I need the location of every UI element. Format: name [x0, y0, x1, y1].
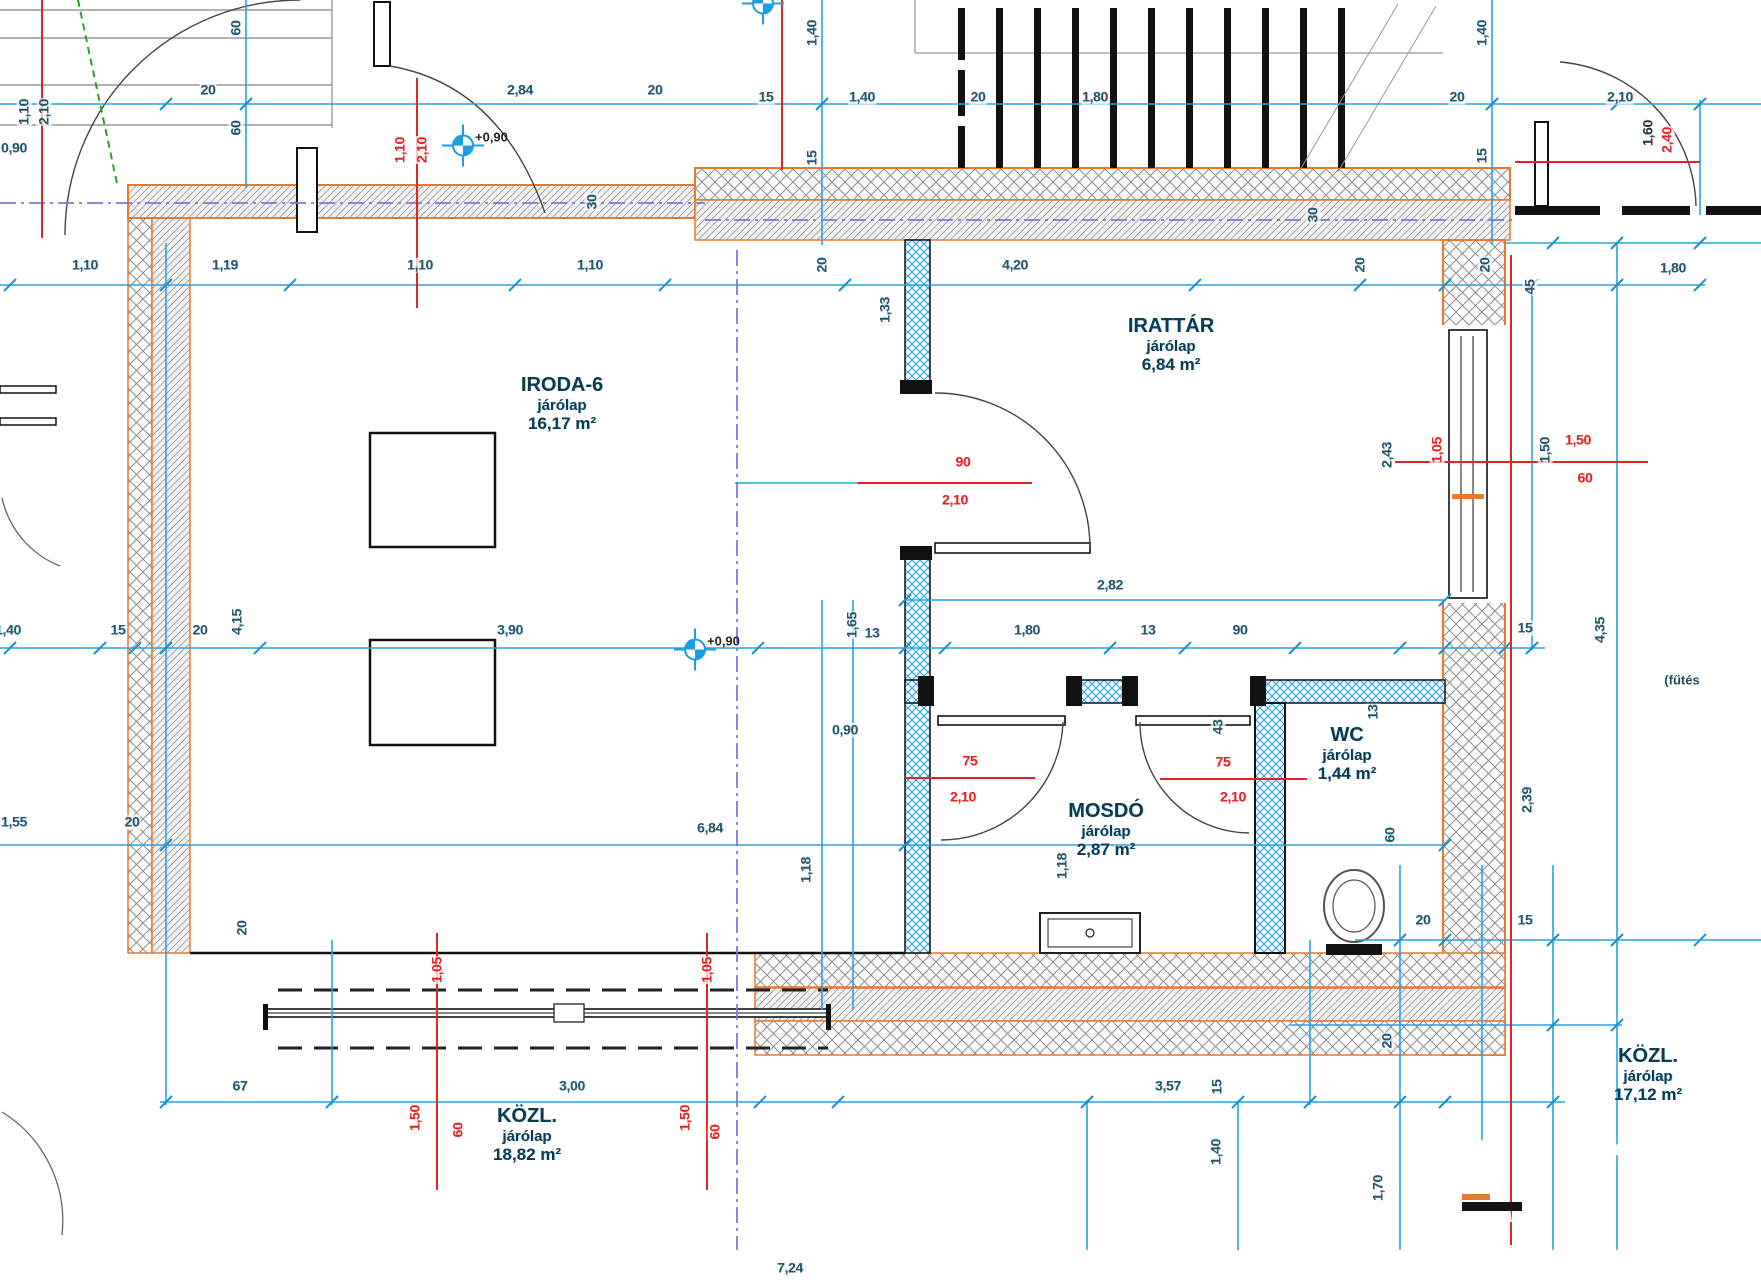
dimension-label: 2,43 — [1380, 441, 1395, 469]
room-rname: KÖZL. — [1614, 1045, 1682, 1068]
dimension-label: 2,10 — [949, 790, 977, 805]
dimension-label: 1,18 — [1055, 852, 1070, 880]
dimension-label: 60 — [708, 1124, 723, 1141]
staircase-top — [915, 0, 1443, 172]
dimension-label: 20 — [970, 90, 987, 105]
dimension-label: 2,39 — [1520, 786, 1535, 814]
dimension-label: 75 — [1215, 755, 1232, 770]
dimension-label: 4,35 — [1593, 616, 1608, 644]
dimension-label: 30 — [585, 194, 600, 211]
columns — [370, 433, 495, 745]
room-label: IRATTÁRjárólap6,84 m² — [1128, 315, 1214, 375]
dimension-label: 6,84 — [696, 821, 724, 836]
dimension-label: 60 — [229, 120, 244, 137]
dimension-label: 2,10 — [415, 136, 430, 164]
dimension-label: 13 — [1140, 623, 1157, 638]
dimension-label: 2,10 — [1219, 790, 1247, 805]
dimension-label: 67 — [232, 1079, 249, 1094]
dimension-label: 20 — [1353, 257, 1368, 274]
dimension-label: 1,65 — [845, 611, 860, 639]
dimension-label: 20 — [235, 920, 250, 937]
dimension-label: 90 — [1232, 623, 1249, 638]
room-rarea: 16,17 m² — [521, 414, 603, 434]
room-rfinish: járólap — [521, 397, 603, 414]
dimension-label: 0,90 — [0, 141, 28, 156]
dimension-label: 15 — [1210, 1079, 1225, 1096]
room-rarea: 18,82 m² — [493, 1145, 561, 1165]
dimension-label: 1,40 — [805, 19, 820, 47]
corridor-wall-bottom — [263, 990, 831, 1048]
dimension-label: 15 — [805, 150, 820, 167]
dimension-label: 30 — [1306, 207, 1321, 224]
room-rfinish: járólap — [493, 1128, 561, 1145]
room-label: MOSDÓjárólap2,87 m² — [1068, 800, 1144, 860]
dimension-label: 13 — [1366, 704, 1381, 721]
dimension-label: 15 — [110, 623, 127, 638]
dimension-label: 1,10 — [576, 258, 604, 273]
dimension-label: 1,50 — [678, 1104, 693, 1132]
dimension-label: 1,40 — [0, 623, 22, 638]
dimension-label: 1,80 — [1659, 261, 1687, 276]
dimension-label: 4,15 — [230, 608, 245, 636]
dimension-label: 60 — [229, 20, 244, 37]
dimension-label: 75 — [962, 754, 979, 769]
dimension-label: 2,10 — [941, 493, 969, 508]
dimension-label: 0,90 — [831, 723, 859, 738]
annotation-text: (fűtés — [1664, 673, 1699, 688]
dimension-label: 20 — [192, 623, 209, 638]
dimension-label: 1,80 — [1081, 90, 1109, 105]
room-rname: MOSDÓ — [1068, 800, 1144, 823]
dimension-label: 1,05 — [700, 956, 715, 984]
room-rarea: 2,87 m² — [1068, 840, 1144, 860]
dimension-label: 1,05 — [1430, 436, 1445, 464]
room-rfinish: járólap — [1614, 1068, 1682, 1085]
room-label: KÖZL.járólap17,12 m² — [1614, 1045, 1682, 1105]
dimension-label: 20 — [1478, 257, 1493, 274]
dimension-label: 2,40 — [1660, 126, 1675, 154]
room-rarea: 6,84 m² — [1128, 355, 1214, 375]
dimension-label: 1,18 — [799, 856, 814, 884]
dimension-label: 20 — [124, 815, 141, 830]
room-label: WCjárólap1,44 m² — [1318, 724, 1377, 784]
dimension-label: 1,50 — [408, 1104, 423, 1132]
room-rfinish: járólap — [1128, 338, 1214, 355]
floor-plan-drawing — [0, 0, 1761, 1280]
dimension-label: 90 — [955, 455, 972, 470]
dimension-label: 2,10 — [37, 98, 52, 126]
dimension-label: 1,60 — [1641, 119, 1656, 147]
centerlines — [0, 203, 1515, 1250]
dimension-label: 1,55 — [0, 815, 28, 830]
window-right — [1441, 325, 1507, 603]
dimension-label: 60 — [1383, 827, 1398, 844]
dimension-label: 1,50 — [1538, 436, 1553, 464]
dimension-label: 1,19 — [211, 258, 239, 273]
floor-plan-canvas: 202,8420151,40201,80202,100,901,101,191,… — [0, 0, 1761, 1280]
room-label: KÖZL.járólap18,82 m² — [493, 1105, 561, 1165]
room-label: IRODA-6járólap16,17 m² — [521, 374, 603, 434]
room-rname: IRATTÁR — [1128, 315, 1214, 338]
dimension-label: 43 — [1211, 719, 1226, 736]
level-value: +0,90 — [475, 130, 508, 145]
dimension-label: 20 — [815, 257, 830, 274]
level-target-icon — [741, 0, 785, 26]
dimension-label: 13 — [864, 626, 881, 641]
room-rarea: 17,12 m² — [1614, 1085, 1682, 1105]
dimension-label: 3,57 — [1154, 1079, 1182, 1094]
dimension-label: 2,10 — [1606, 90, 1634, 105]
dimension-label: 7,24 — [776, 1261, 804, 1276]
dimension-label: 1,40 — [848, 90, 876, 105]
dimension-label: 1,50 — [1564, 433, 1592, 448]
dimension-label: 1,40 — [1475, 19, 1490, 47]
fixtures-layer — [1040, 870, 1384, 955]
dimension-label: 2,82 — [1096, 578, 1124, 593]
dimension-label: 20 — [647, 83, 664, 98]
dimension-label: 15 — [1517, 913, 1534, 928]
dimension-label: 1,40 — [1209, 1138, 1224, 1166]
dimension-label: 20 — [200, 83, 217, 98]
room-rfinish: járólap — [1068, 823, 1144, 840]
room-rname: WC — [1318, 724, 1377, 747]
level-marker: +0,90 — [673, 628, 717, 677]
level-value: +0,90 — [707, 634, 740, 649]
dimension-label: 1,10 — [393, 136, 408, 164]
dimension-label: 45 — [1523, 279, 1538, 296]
dimension-label: 1,10 — [17, 98, 32, 126]
room-rname: IRODA-6 — [521, 374, 603, 397]
dimension-label: 15 — [1517, 621, 1534, 636]
dimension-label: 4,20 — [1001, 258, 1029, 273]
dimension-label: 60 — [1577, 471, 1594, 486]
dimension-label: 1,33 — [878, 296, 893, 324]
dimension-label: 20 — [1449, 90, 1466, 105]
dimension-label: 15 — [1475, 148, 1490, 165]
dimension-label: 2,84 — [506, 83, 534, 98]
room-rfinish: járólap — [1318, 747, 1377, 764]
dimension-label: 15 — [758, 90, 775, 105]
dimension-label: 1,80 — [1013, 623, 1041, 638]
dimension-label: 1,05 — [430, 956, 445, 984]
dimension-label: 20 — [1380, 1033, 1395, 1050]
dimension-label: 60 — [451, 1122, 466, 1139]
room-rarea: 1,44 m² — [1318, 764, 1377, 784]
dimension-label: 1,10 — [71, 258, 99, 273]
watermark — [1462, 1128, 1652, 1222]
level-marker: +0,90 — [441, 124, 485, 173]
dimension-label: 3,90 — [496, 623, 524, 638]
dimension-label: 20 — [1415, 913, 1432, 928]
dimension-label: 1,70 — [1371, 1174, 1386, 1202]
left-edge-openings — [0, 386, 63, 1235]
dimension-label: 1,10 — [406, 258, 434, 273]
dimension-label: 3,00 — [558, 1079, 586, 1094]
room-rname: KÖZL. — [493, 1105, 561, 1128]
level-marker — [741, 0, 785, 31]
